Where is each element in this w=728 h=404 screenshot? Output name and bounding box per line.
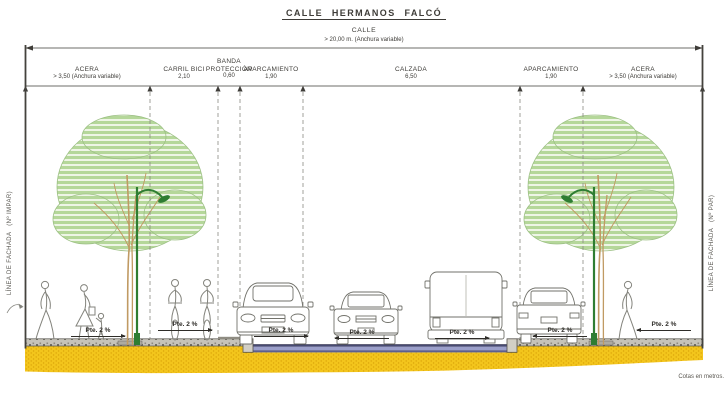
slope-parking-right: Pte. 2 % bbox=[528, 327, 592, 337]
zone-acera-right: ACERA > 3,50 (Anchura variable) bbox=[583, 66, 703, 81]
street-cross-section-diagram: CALLE HERMANOS FALCÓ CALLE > 20,00 m. (A… bbox=[0, 0, 728, 404]
zone-aparcamiento-left: APARCAMIENTO 1,90 bbox=[231, 66, 311, 81]
zone-dimension-line bbox=[23, 86, 705, 92]
slope-roadway-left: Pte. 2 % bbox=[330, 329, 394, 339]
overall-dimension-name: CALLE bbox=[284, 27, 444, 36]
slope-arrow-left-icon bbox=[533, 336, 587, 337]
slope-sidewalk-left: Pte. 2 % bbox=[66, 327, 130, 337]
pedestrian-left bbox=[36, 281, 54, 339]
facade-label-right: LÍNEA DE FACHADA (Nº PAR) bbox=[709, 168, 719, 318]
roadway-surface bbox=[253, 345, 507, 353]
slope-sidewalk-right: Pte. 2 % bbox=[632, 321, 696, 331]
diagram-svg bbox=[0, 0, 728, 404]
overall-dimension-label: CALLE > 20,00 m. (Anchura variable) bbox=[284, 27, 444, 44]
slope-arrow-right-icon bbox=[158, 330, 212, 331]
zone-aparcamiento-right: APARCAMIENTO 1,90 bbox=[511, 66, 591, 81]
slope-arrow-right-icon bbox=[435, 338, 489, 339]
title-bar: CALLE HERMANOS FALCÓ bbox=[0, 3, 728, 21]
slope-arrow-right-icon bbox=[71, 336, 125, 337]
slope-arrow-right-icon bbox=[254, 336, 308, 337]
slope-parking-left: Pte. 2 % bbox=[249, 327, 313, 337]
dim-arrow-right bbox=[695, 45, 703, 50]
slope-roadway-right: Pte. 2 % bbox=[430, 329, 494, 339]
dim-arrow-left bbox=[26, 45, 34, 50]
slope-bike-lane: Pte. 2 % bbox=[153, 321, 217, 331]
page-title: CALLE HERMANOS FALCÓ bbox=[282, 8, 446, 20]
cyclist-1 bbox=[168, 280, 182, 341]
facade-label-left: LÍNEA DE FACHADA (Nº IMPAR) bbox=[7, 168, 17, 318]
left-tree bbox=[53, 115, 206, 345]
slope-arrow-left-icon bbox=[637, 330, 691, 331]
zone-calzada: CALZADA 6,50 bbox=[371, 66, 451, 81]
overall-dimension-value: > 20,00 m. (Anchura variable) bbox=[284, 36, 444, 45]
zone-acera-left: ACERA > 3,50 (Anchura variable) bbox=[22, 66, 152, 81]
slope-arrow-left-icon bbox=[335, 338, 389, 339]
units-note: Cotas en metros. bbox=[678, 374, 724, 380]
